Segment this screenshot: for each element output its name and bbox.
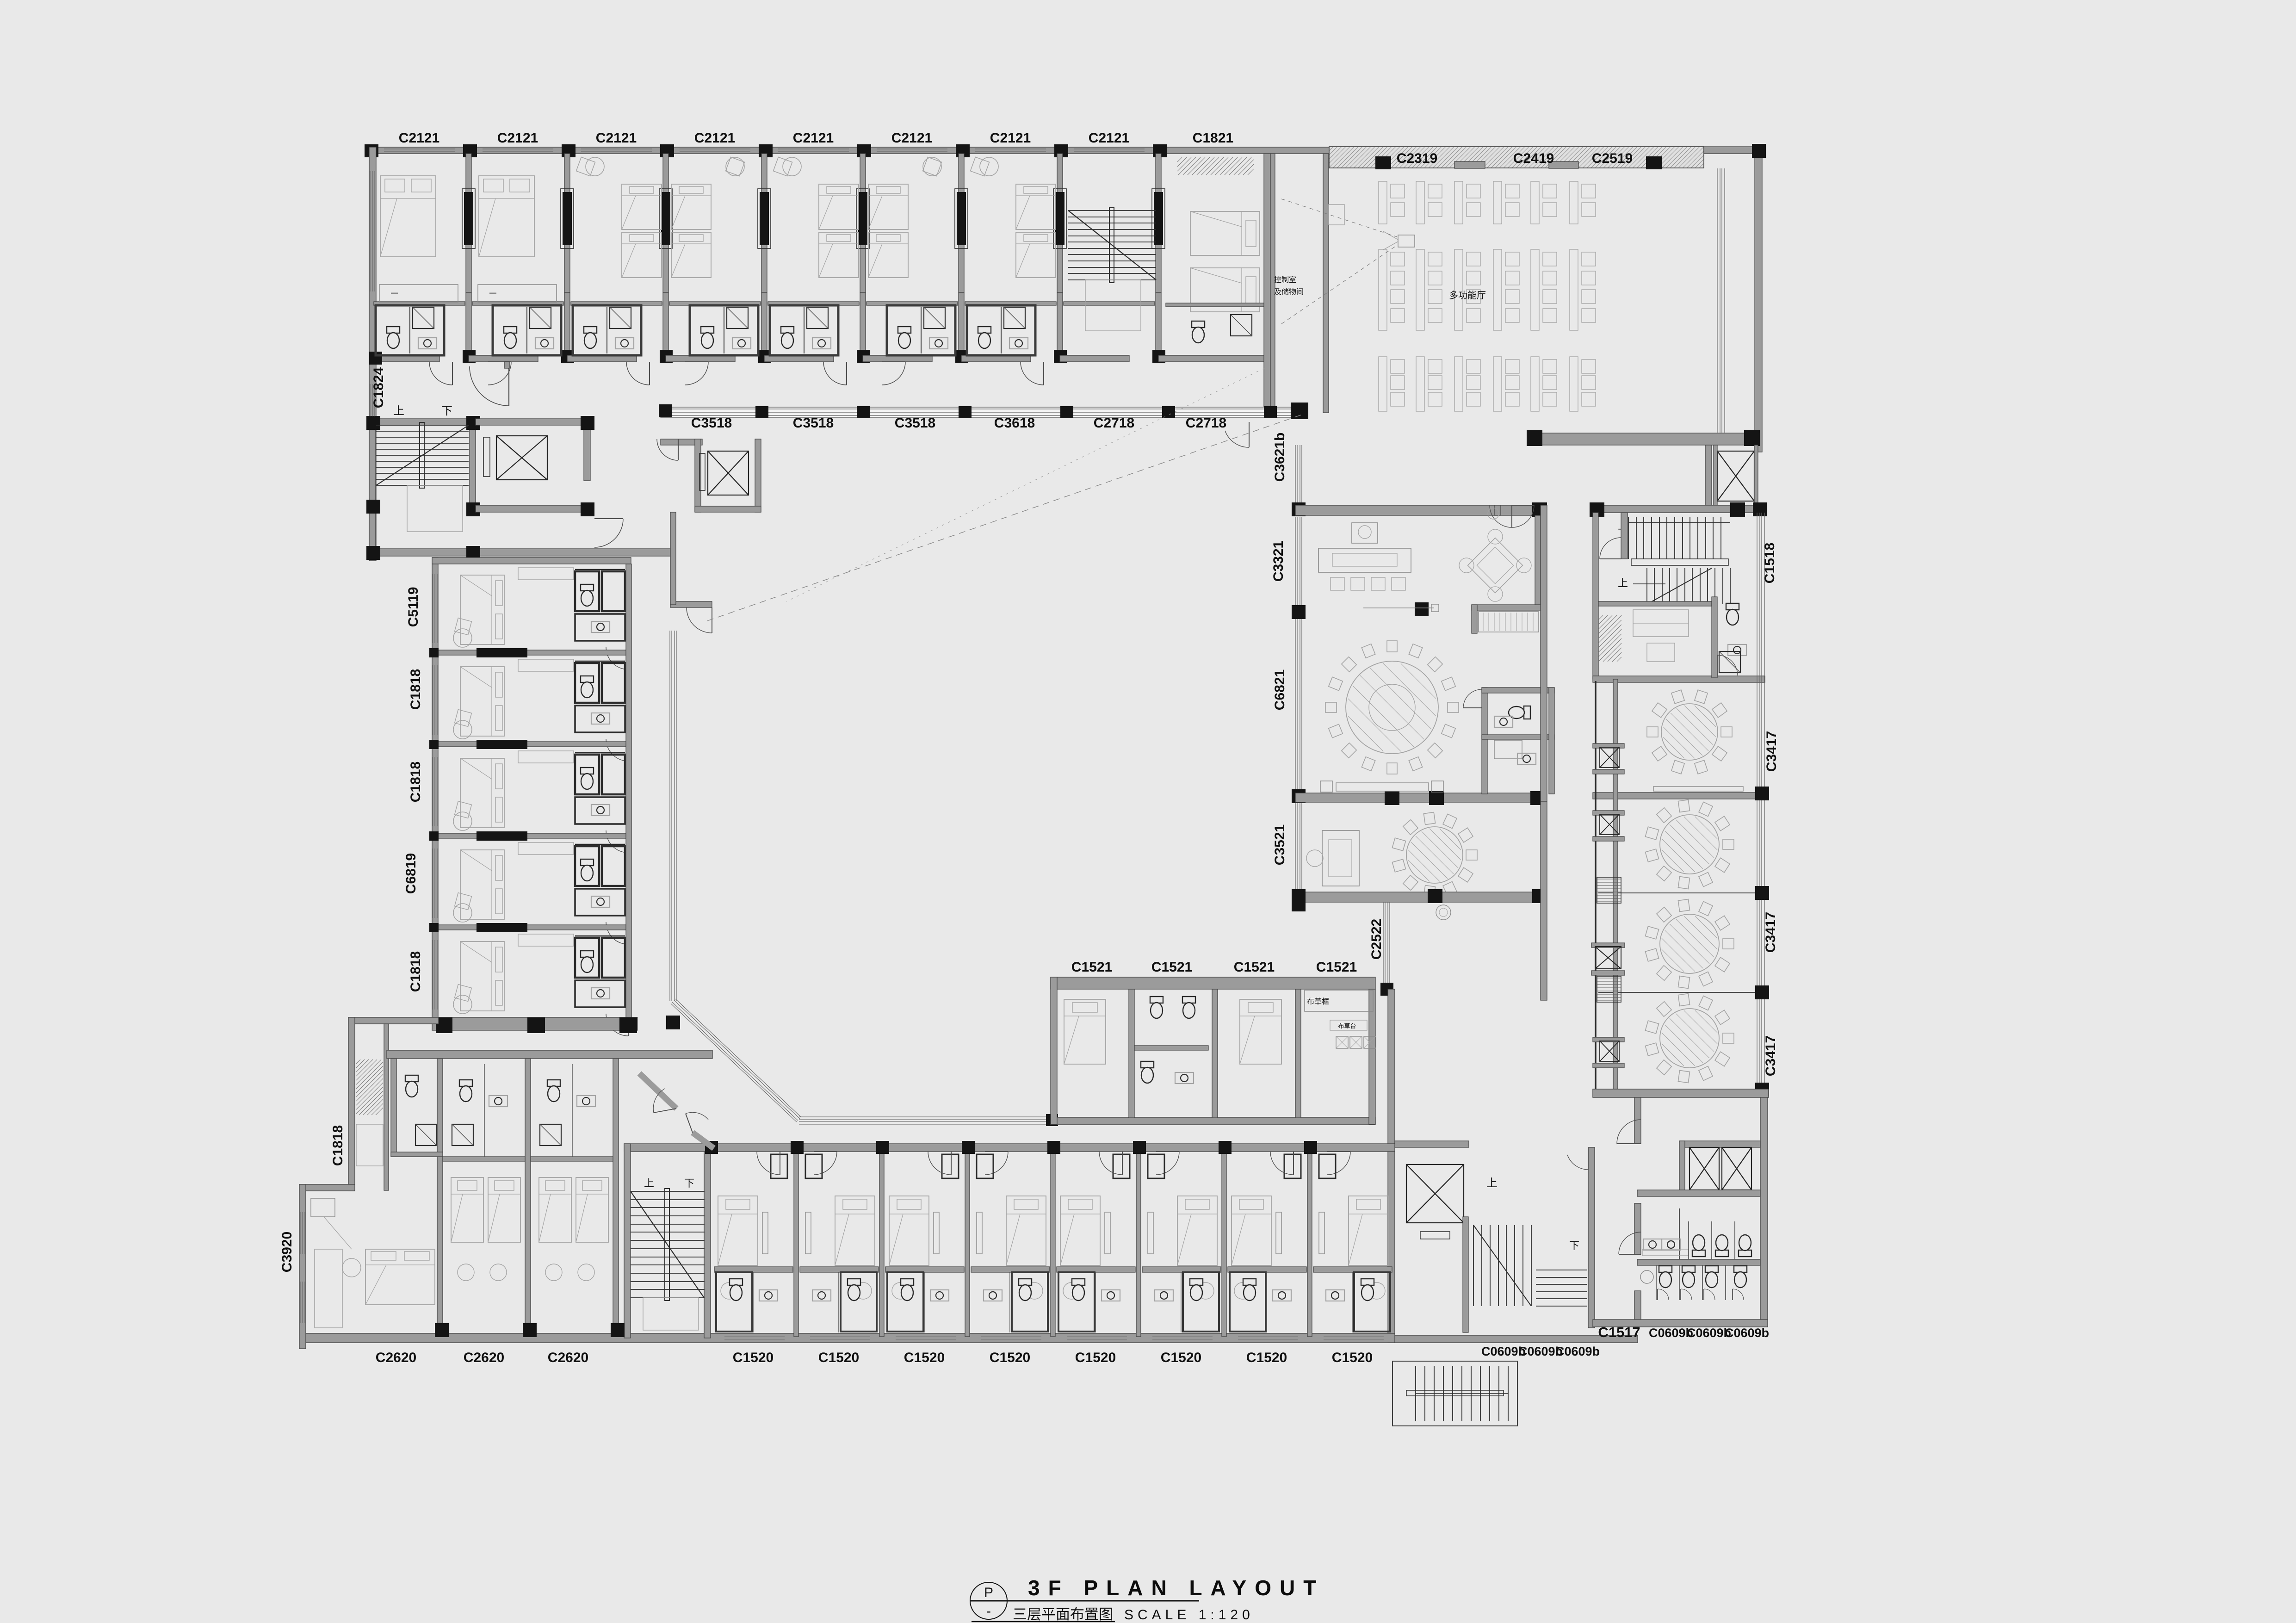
svg-text:C3518: C3518 (691, 415, 732, 431)
svg-text:三层平面布置图: 三层平面布置图 (1013, 1606, 1113, 1623)
svg-text:C3417: C3417 (1763, 1035, 1778, 1076)
svg-text:C1520: C1520 (1246, 1350, 1287, 1365)
svg-text:C3518: C3518 (895, 415, 935, 431)
svg-text:上: 上 (393, 405, 404, 417)
svg-text:C1818: C1818 (408, 951, 423, 992)
svg-text:上: 上 (644, 1177, 654, 1189)
svg-text:C2121: C2121 (694, 130, 735, 146)
svg-text:C2718: C2718 (1094, 415, 1134, 431)
svg-text:C1818: C1818 (408, 669, 423, 710)
svg-text:C3618: C3618 (994, 415, 1035, 431)
svg-text:布草框: 布草框 (1307, 997, 1329, 1006)
svg-text:P: P (984, 1585, 993, 1600)
svg-text:C0609b: C0609b (1725, 1326, 1769, 1340)
svg-text:C1520: C1520 (733, 1350, 774, 1365)
svg-text:C1520: C1520 (1332, 1350, 1373, 1365)
svg-text:及储物间: 及储物间 (1274, 288, 1304, 296)
svg-text:C2718: C2718 (1186, 415, 1226, 431)
svg-text:C2121: C2121 (497, 130, 538, 146)
svg-text:C1821: C1821 (1193, 130, 1233, 146)
svg-text:C1818: C1818 (330, 1125, 346, 1166)
svg-text:C1521: C1521 (1071, 960, 1112, 975)
svg-text:下: 下 (1569, 1240, 1579, 1251)
svg-text:C3518: C3518 (793, 415, 834, 431)
svg-text:C3521: C3521 (1272, 824, 1287, 865)
svg-text:C2121: C2121 (399, 130, 439, 146)
svg-text:C1518: C1518 (1762, 543, 1777, 583)
svg-text:C1520: C1520 (818, 1350, 859, 1365)
svg-text:C2121: C2121 (891, 130, 932, 146)
svg-text:C6819: C6819 (403, 853, 419, 894)
svg-text:C1520: C1520 (1161, 1350, 1201, 1365)
svg-text:C2620: C2620 (464, 1350, 504, 1365)
svg-text:C5119: C5119 (406, 587, 421, 627)
svg-text:C2121: C2121 (793, 130, 834, 146)
svg-text:C3321: C3321 (1271, 541, 1286, 582)
svg-text:控制室: 控制室 (1274, 276, 1296, 284)
svg-text:上: 上 (1618, 577, 1628, 589)
svg-text:C2319: C2319 (1397, 151, 1437, 166)
svg-text:C1521: C1521 (1316, 960, 1357, 975)
svg-text:下: 下 (684, 1177, 694, 1189)
svg-text:C3621b: C3621b (1272, 433, 1287, 482)
svg-text:C0609b: C0609b (1555, 1344, 1600, 1358)
svg-text:多功能厅: 多功能厅 (1449, 290, 1486, 301)
svg-text:上: 上 (1486, 1177, 1498, 1189)
svg-text:C2620: C2620 (376, 1350, 416, 1365)
svg-text:C2522: C2522 (1369, 919, 1384, 960)
svg-text:-: - (986, 1604, 991, 1619)
svg-text:C1521: C1521 (1151, 960, 1192, 975)
svg-text:C3920: C3920 (279, 1232, 295, 1272)
svg-text:C1520: C1520 (904, 1350, 945, 1365)
svg-text:C3417: C3417 (1764, 731, 1779, 772)
svg-text:布草台: 布草台 (1338, 1022, 1356, 1029)
svg-text:C1517: C1517 (1598, 1324, 1640, 1340)
svg-text:C2121: C2121 (990, 130, 1031, 146)
svg-text:C2519: C2519 (1592, 151, 1633, 166)
svg-text:下: 下 (441, 405, 452, 417)
svg-text:C3417: C3417 (1763, 912, 1778, 953)
svg-text:C1818: C1818 (408, 762, 423, 802)
svg-text:C1520: C1520 (990, 1350, 1030, 1365)
svg-text:C2419: C2419 (1513, 151, 1554, 166)
svg-text:3F PLAN LAYOUT: 3F PLAN LAYOUT (1028, 1576, 1324, 1600)
svg-text:SCALE 1:120: SCALE 1:120 (1124, 1607, 1254, 1623)
svg-text:C2121: C2121 (1089, 130, 1129, 146)
svg-text:C1824: C1824 (371, 367, 386, 408)
svg-text:C1521: C1521 (1234, 960, 1275, 975)
svg-text:C1520: C1520 (1075, 1350, 1116, 1365)
svg-text:C2121: C2121 (596, 130, 637, 146)
svg-text:C6821: C6821 (1272, 669, 1287, 710)
svg-text:C2620: C2620 (548, 1350, 588, 1365)
